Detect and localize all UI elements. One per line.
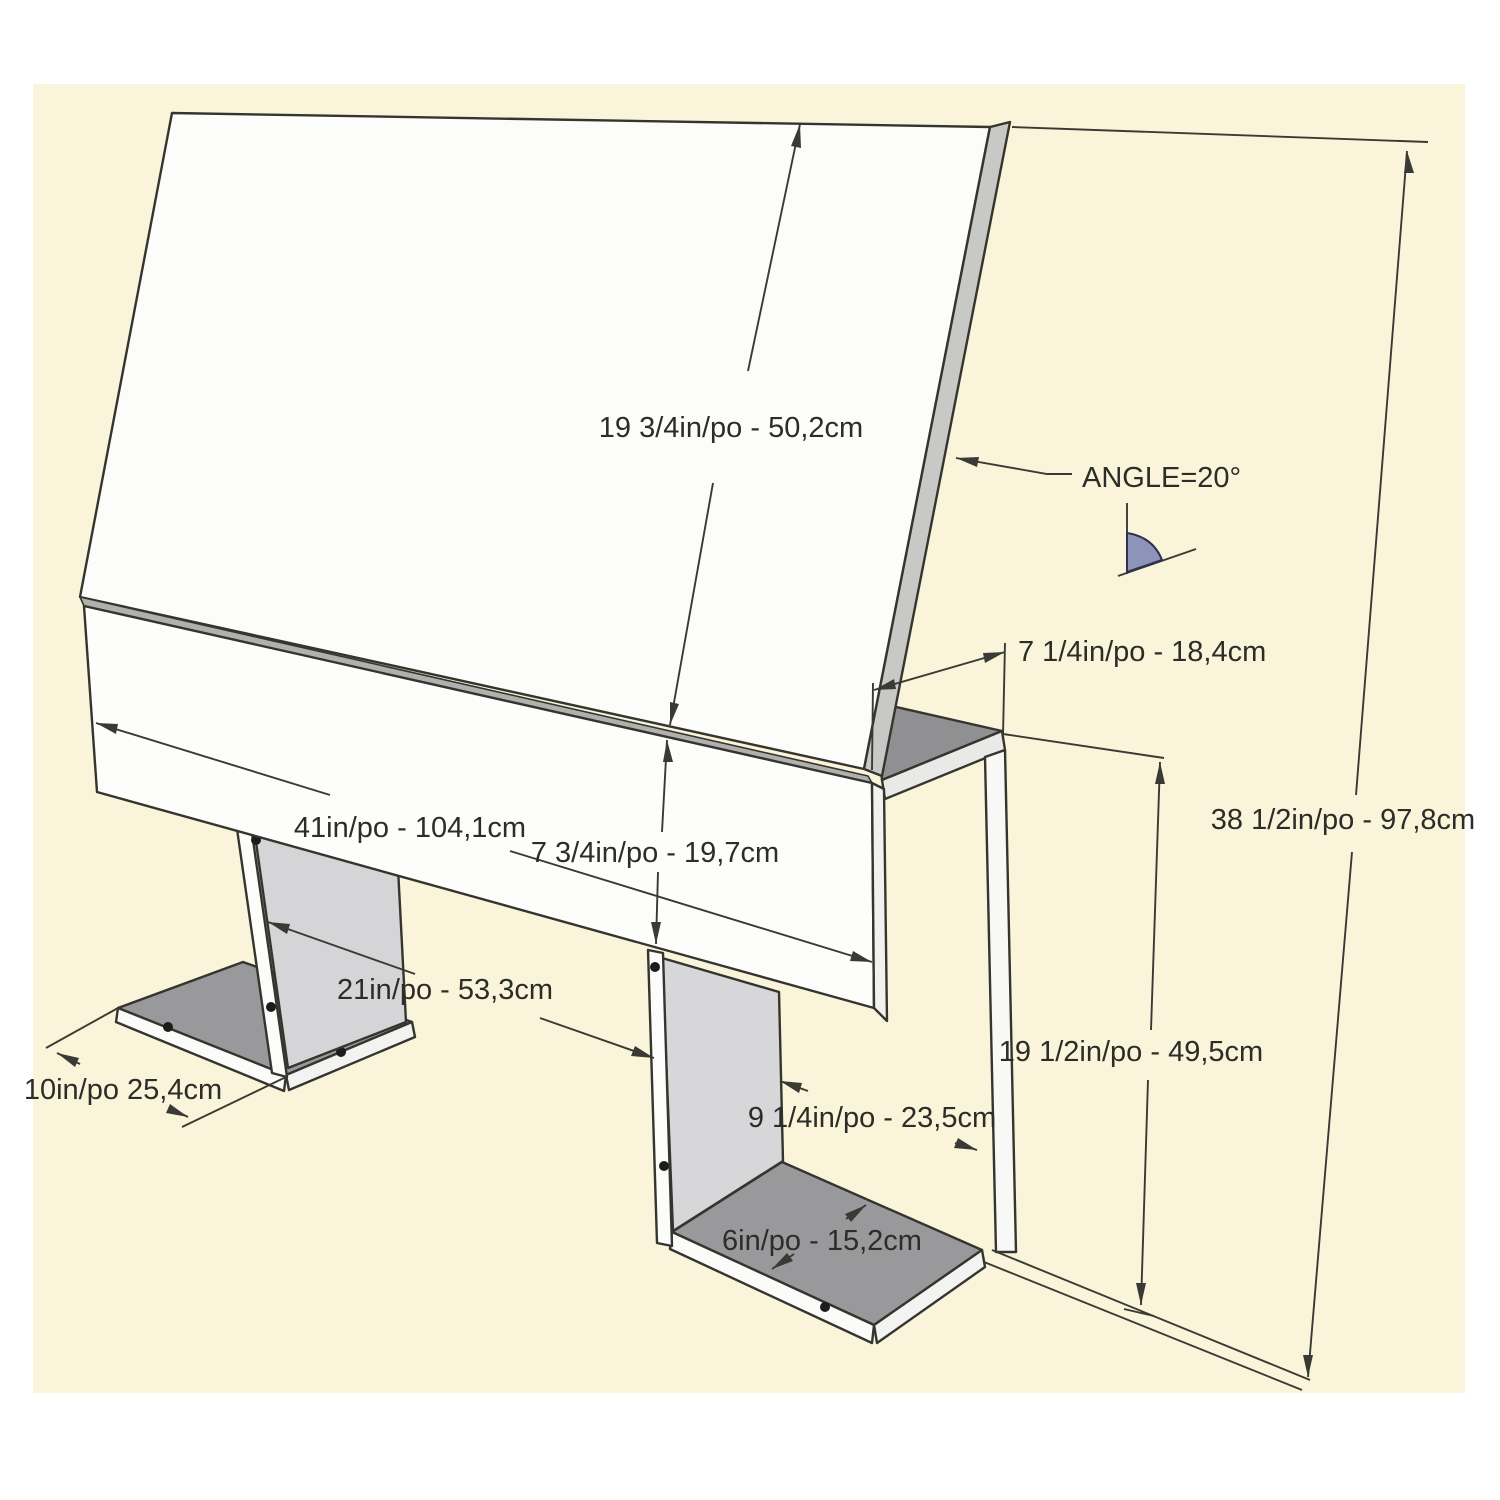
label-front-height: 7 3/4in/po - 19,7cm xyxy=(531,837,779,869)
label-leg-height: 19 1/2in/po - 49,5cm xyxy=(999,1036,1263,1068)
screw-hole-icon xyxy=(650,962,660,972)
label-overall-height: 38 1/2in/po - 97,8cm xyxy=(1211,804,1475,836)
front-panel-right-edge xyxy=(872,783,887,1021)
label-leg-spacing: 21in/po - 53,3cm xyxy=(337,974,553,1006)
screw-hole-icon xyxy=(266,1002,276,1012)
label-base-width: 6in/po - 15,2cm xyxy=(722,1225,922,1257)
label-overall-width: 41in/po - 104,1cm xyxy=(294,812,526,844)
screw-hole-icon xyxy=(659,1161,669,1171)
label-top-depth: 7 1/4in/po - 18,4cm xyxy=(1018,636,1266,668)
screw-hole-icon xyxy=(163,1022,173,1032)
diagram-canvas: 19 3/4in/po - 50,2cm ANGLE=20° 7 1/4in/p… xyxy=(0,0,1500,1500)
screw-hole-icon xyxy=(820,1302,830,1312)
label-panel-length: 19 3/4in/po - 50,2cm xyxy=(599,412,863,444)
label-leg-panel-width: 9 1/4in/po - 23,5cm xyxy=(748,1102,996,1134)
label-angle: ANGLE=20° xyxy=(1082,462,1241,494)
diagram-page: 19 3/4in/po - 50,2cm ANGLE=20° 7 1/4in/p… xyxy=(0,0,1500,1500)
label-base-depth: 10in/po 25,4cm xyxy=(24,1074,222,1106)
